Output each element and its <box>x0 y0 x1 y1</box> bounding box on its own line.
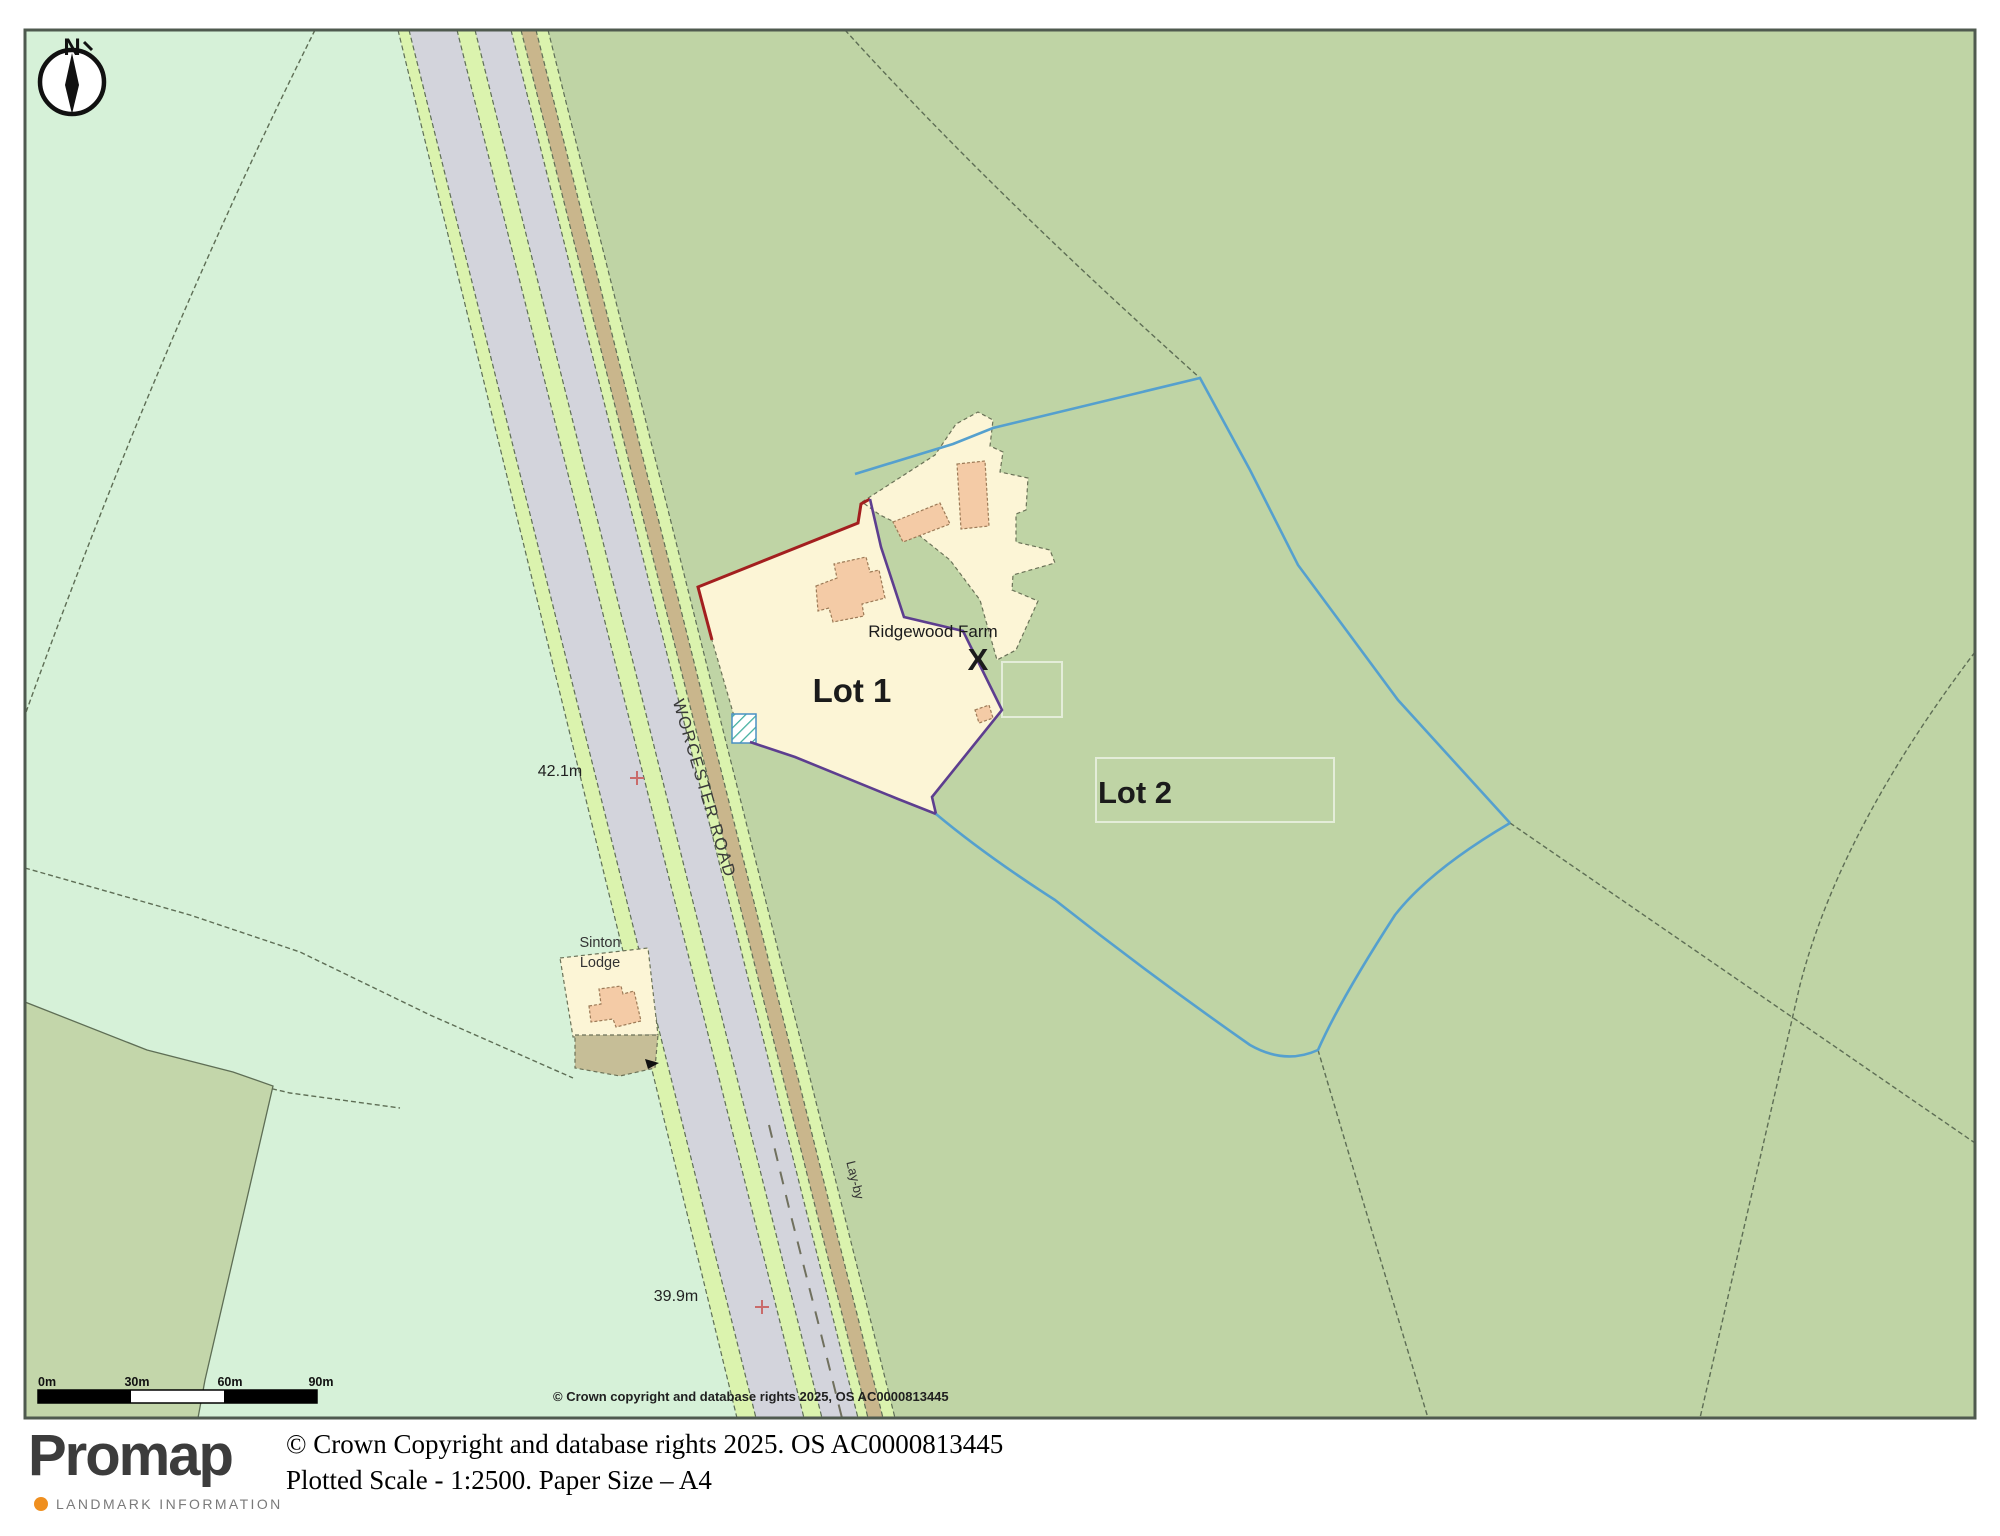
scale-tick-0m: 0m <box>38 1375 56 1389</box>
lot2-label: Lot 2 <box>1098 775 1172 810</box>
map-copyright: © Crown copyright and database rights 20… <box>553 1389 949 1404</box>
farm-name-label: Ridgewood Farm <box>868 622 997 641</box>
spot-height-upper: 42.1m <box>538 763 582 780</box>
landmark-branding: LANDMARK INFORMATION <box>34 1496 283 1512</box>
hatched-square-symbol <box>732 714 756 743</box>
landmark-dot-icon <box>34 1497 48 1511</box>
footer-scale-line: Plotted Scale - 1:2500. Paper Size – A4 <box>286 1462 1003 1498</box>
scale-tick-60m: 60m <box>217 1375 242 1389</box>
sinton-label-line1: Sinton <box>579 935 620 951</box>
spot-height-lower: 39.9m <box>654 1288 698 1305</box>
map-canvas: Ridgewood Farm X Lot 1 Lot 2 42.1m 39.9m… <box>0 0 2000 1536</box>
footer: Promap LANDMARK INFORMATION © Crown Copy… <box>0 1420 2000 1536</box>
scale-tick-90m: 90m <box>308 1375 333 1389</box>
lot1-label: Lot 1 <box>813 672 892 709</box>
x-marker: X <box>968 642 989 677</box>
north-barn-building <box>957 461 989 529</box>
sinton-label-line2: Lodge <box>580 955 620 971</box>
promap-logo: Promap <box>28 1422 232 1489</box>
sinton-farmyard <box>575 1035 658 1076</box>
footer-copyright-line: © Crown Copyright and database rights 20… <box>286 1426 1003 1462</box>
promap-plan-page: Ridgewood Farm X Lot 1 Lot 2 42.1m 39.9m… <box>0 0 2000 1536</box>
north-letter: N <box>63 34 80 61</box>
scale-tick-30m: 30m <box>124 1375 149 1389</box>
landmark-subtitle: LANDMARK INFORMATION <box>56 1496 283 1512</box>
footer-attribution: © Crown Copyright and database rights 20… <box>286 1426 1003 1498</box>
